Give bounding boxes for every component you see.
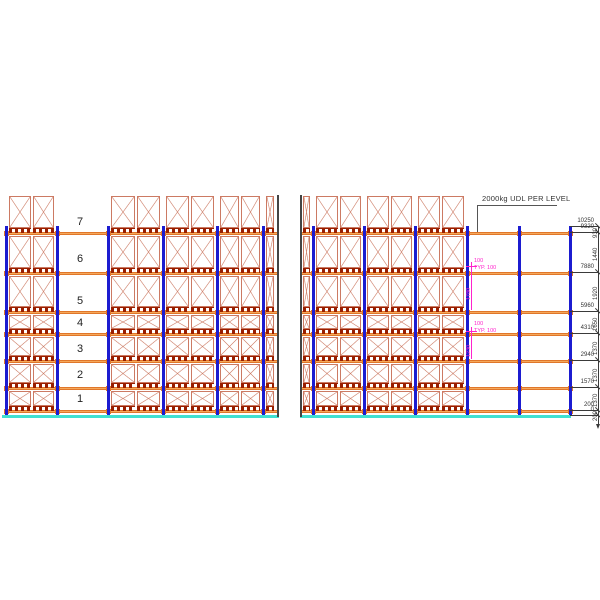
pallet-base — [266, 228, 274, 233]
pallet-load-box — [442, 196, 464, 228]
pallet-load-box — [340, 364, 362, 383]
pallet-base — [316, 356, 338, 361]
pallet-base — [391, 329, 413, 334]
pallet-base — [9, 307, 31, 312]
pallet-base — [33, 406, 55, 411]
pallet-base — [442, 356, 464, 361]
pallet-base — [33, 307, 55, 312]
pallet-base — [340, 329, 362, 334]
pallet-load-box — [418, 337, 440, 356]
pallet-load-box — [137, 276, 161, 307]
pallet-base — [340, 268, 362, 273]
pallet-base — [391, 406, 413, 411]
pallet-load-box — [316, 315, 338, 329]
dim-elevation-label: 0 — [560, 407, 594, 414]
pallet-load-box — [316, 391, 338, 406]
dim-arrow-down — [596, 424, 600, 429]
pallet-load-box — [303, 236, 310, 268]
upright-left-3 — [162, 226, 165, 415]
pallet-base — [241, 383, 260, 388]
level-number-1: 1 — [68, 393, 92, 405]
pallet-load-box — [442, 236, 464, 268]
pallet-load-box — [166, 315, 189, 329]
pallet-load-box — [340, 315, 362, 329]
pallet-load-box — [418, 196, 440, 228]
pallet-base — [303, 383, 310, 388]
dim-extension-line — [570, 387, 599, 388]
pallet-load-box — [367, 196, 389, 228]
dim-elevation-label: 1570 — [560, 379, 594, 386]
pallet-base — [220, 268, 239, 273]
pallet-load-box — [33, 236, 55, 268]
pallet-base — [137, 307, 161, 312]
pallet-load-box — [303, 337, 310, 356]
pallet-load-box — [303, 391, 310, 406]
break-line-left — [277, 195, 279, 417]
dim-elevation-label: 7880 — [560, 264, 594, 271]
pallet-base — [266, 356, 274, 361]
pallet-load-box — [442, 276, 464, 307]
pallet-base — [137, 406, 161, 411]
upright-left-4 — [216, 226, 219, 415]
pallet-load-box — [9, 364, 31, 383]
note-leader-underline — [477, 205, 557, 206]
pallet-load-box — [266, 196, 274, 228]
pallet-base — [391, 383, 413, 388]
pallet-load-box — [266, 337, 274, 356]
pallet-base — [220, 228, 239, 233]
pallet-load-box — [191, 364, 214, 383]
pallet-base — [418, 307, 440, 312]
pallet-load-box — [442, 337, 464, 356]
pallet-base — [9, 268, 31, 273]
pallet-load-box — [418, 315, 440, 329]
pallet-load-box — [191, 337, 214, 356]
pallet-base — [111, 356, 135, 361]
break-line-right — [300, 195, 302, 417]
pallet-load-box — [391, 391, 413, 406]
pallet-load-box — [166, 364, 189, 383]
pallet-load-box — [137, 364, 161, 383]
callout-clear-label: 1230 — [466, 345, 472, 357]
callout-beam-label: 100 — [474, 321, 483, 327]
pallet-load-box — [266, 315, 274, 329]
pallet-load-box — [9, 337, 31, 356]
pallet-load-box — [340, 391, 362, 406]
dim-spacing-label: 1440 — [593, 248, 599, 261]
pallet-base — [442, 329, 464, 334]
pallet-load-box — [241, 196, 260, 228]
pallet-base — [266, 406, 274, 411]
pallet-base — [367, 406, 389, 411]
pallet-base — [9, 406, 31, 411]
pallet-base — [391, 268, 413, 273]
upright-right-3 — [466, 226, 469, 415]
dim-extension-line — [570, 333, 599, 334]
pallet-base — [137, 268, 161, 273]
pallet-load-box — [191, 276, 214, 307]
pallet-load-box — [191, 196, 214, 228]
pallet-base — [442, 406, 464, 411]
pallet-base — [9, 356, 31, 361]
pallet-load-box — [191, 391, 214, 406]
pallet-load-box — [367, 276, 389, 307]
pallet-base — [316, 307, 338, 312]
pallet-load-box — [367, 236, 389, 268]
pallet-load-box — [340, 337, 362, 356]
pallet-load-box — [33, 276, 55, 307]
upright-left-1 — [56, 226, 59, 415]
pallet-load-box — [111, 196, 135, 228]
upright-right-1 — [363, 226, 366, 415]
pallet-base — [418, 268, 440, 273]
pallet-load-box — [391, 236, 413, 268]
callout-beam-label: 100 — [474, 258, 483, 264]
pallet-base — [166, 307, 189, 312]
pallet-base — [391, 228, 413, 233]
pallet-base — [303, 356, 310, 361]
pallet-base — [33, 383, 55, 388]
pallet-load-box — [220, 236, 239, 268]
pallet-load-box — [33, 391, 55, 406]
pallet-load-box — [137, 236, 161, 268]
pallet-base — [166, 356, 189, 361]
pallet-base — [418, 406, 440, 411]
pallet-load-box — [316, 364, 338, 383]
pallet-load-box — [391, 315, 413, 329]
upright-right-2 — [414, 226, 417, 415]
pallet-base — [111, 228, 135, 233]
dim-extension-line — [570, 360, 599, 361]
pallet-base — [111, 307, 135, 312]
pallet-base — [367, 307, 389, 312]
callout-clear-label: 1780 — [466, 288, 472, 300]
pallet-load-box — [137, 196, 161, 228]
pallet-base — [418, 228, 440, 233]
pallet-load-box — [442, 315, 464, 329]
pallet-load-box — [166, 391, 189, 406]
pallet-base — [340, 307, 362, 312]
level-number-2: 2 — [68, 369, 92, 381]
pallet-base — [111, 268, 135, 273]
pallet-load-box — [137, 315, 161, 329]
pallet-base — [33, 356, 55, 361]
pallet-base — [191, 406, 214, 411]
pallet-load-box — [316, 236, 338, 268]
pallet-load-box — [442, 391, 464, 406]
pallet-base — [220, 329, 239, 334]
upright-right-4 — [518, 226, 521, 415]
pallet-load-box — [220, 337, 239, 356]
pallet-base — [166, 268, 189, 273]
pallet-load-box — [303, 276, 310, 307]
pallet-base — [418, 329, 440, 334]
pallet-base — [166, 329, 189, 334]
dim-elevation-label: 5960 — [560, 303, 594, 310]
callout-typ-label: TYP. 100 — [474, 328, 496, 334]
pallet-load-box — [220, 276, 239, 307]
pallet-load-box — [340, 196, 362, 228]
pallet-base — [340, 356, 362, 361]
pallet-base — [340, 406, 362, 411]
pallet-base — [367, 383, 389, 388]
pallet-load-box — [9, 315, 31, 329]
pallet-base — [137, 329, 161, 334]
pallet-load-box — [9, 276, 31, 307]
pallet-load-box — [166, 236, 189, 268]
pallet-base — [316, 329, 338, 334]
pallet-load-box — [33, 196, 55, 228]
pallet-base — [9, 228, 31, 233]
pallet-base — [367, 268, 389, 273]
level-number-6: 6 — [68, 253, 92, 265]
floor-line-left — [2, 415, 279, 418]
pallet-load-box — [33, 364, 55, 383]
pallet-base — [367, 228, 389, 233]
pallet-load-box — [367, 315, 389, 329]
pallet-load-box — [367, 391, 389, 406]
pallet-base — [442, 228, 464, 233]
pallet-load-box — [391, 364, 413, 383]
pallet-load-box — [442, 364, 464, 383]
pallet-load-box — [316, 276, 338, 307]
pallet-base — [220, 383, 239, 388]
pallet-base — [111, 383, 135, 388]
pallet-base — [137, 383, 161, 388]
pallet-base — [220, 356, 239, 361]
pallet-base — [33, 329, 55, 334]
pallet-base — [303, 307, 310, 312]
pallet-base — [391, 356, 413, 361]
dim-elevation-label: 2940 — [560, 352, 594, 359]
pallet-load-box — [241, 276, 260, 307]
pallet-base — [418, 356, 440, 361]
callout-line — [471, 262, 472, 310]
pallet-base — [191, 356, 214, 361]
callout-typ-label: TYP. 100 — [474, 265, 496, 271]
pallet-load-box — [340, 276, 362, 307]
note-leader-line — [477, 205, 478, 232]
dim-spacing-label: 1370 — [593, 342, 599, 355]
pallet-load-box — [241, 315, 260, 329]
dim-spacing-label: 1370 — [593, 394, 599, 407]
pallet-base — [303, 329, 310, 334]
pallet-load-box — [191, 236, 214, 268]
pallet-base — [241, 307, 260, 312]
pallet-base — [137, 356, 161, 361]
pallet-base — [33, 268, 55, 273]
pallet-base — [9, 329, 31, 334]
pallet-load-box — [111, 315, 135, 329]
pallet-base — [316, 406, 338, 411]
pallet-load-box — [111, 364, 135, 383]
level-number-3: 3 — [68, 343, 92, 355]
upright-right-0 — [312, 226, 315, 415]
pallet-base — [220, 406, 239, 411]
pallet-load-box — [316, 196, 338, 228]
pallet-base — [316, 228, 338, 233]
pallet-base — [191, 268, 214, 273]
pallet-base — [191, 228, 214, 233]
pallet-load-box — [418, 391, 440, 406]
pallet-load-box — [166, 337, 189, 356]
pallet-base — [418, 383, 440, 388]
pallet-load-box — [220, 315, 239, 329]
dim-spacing-label: 1650 — [593, 318, 599, 331]
pallet-base — [303, 406, 310, 411]
pallet-load-box — [241, 337, 260, 356]
pallet-load-box — [391, 276, 413, 307]
pallet-base — [137, 228, 161, 233]
dim-elevation-label: 9320 — [560, 224, 594, 231]
pallet-load-box — [303, 196, 310, 228]
pallet-base — [241, 406, 260, 411]
pallet-base — [166, 228, 189, 233]
dim-elevation-label: 4310 — [560, 325, 594, 332]
udl-note-label: 2000kg UDL PER LEVEL — [482, 194, 570, 203]
pallet-base — [9, 383, 31, 388]
pallet-load-box — [220, 364, 239, 383]
pallet-base — [340, 383, 362, 388]
pallet-load-box — [111, 276, 135, 307]
pallet-base — [266, 383, 274, 388]
dim-spacing-label: 1920 — [593, 287, 599, 300]
racking-elevation-drawing: 2000kg UDL PER LEVEL 7654321102509320788… — [0, 0, 600, 600]
pallet-base — [111, 329, 135, 334]
dim-spacing-label: 1370 — [593, 369, 599, 382]
pallet-load-box — [220, 391, 239, 406]
upright-left-0 — [5, 226, 8, 415]
pallet-load-box — [166, 276, 189, 307]
pallet-base — [367, 329, 389, 334]
pallet-base — [166, 383, 189, 388]
pallet-load-box — [111, 391, 135, 406]
pallet-load-box — [137, 337, 161, 356]
pallet-base — [303, 228, 310, 233]
upright-left-5 — [262, 226, 265, 415]
pallet-load-box — [111, 337, 135, 356]
pallet-load-box — [137, 391, 161, 406]
pallet-base — [367, 356, 389, 361]
pallet-base — [241, 228, 260, 233]
pallet-load-box — [266, 276, 274, 307]
pallet-base — [442, 307, 464, 312]
level-number-4: 4 — [68, 317, 92, 329]
pallet-load-box — [220, 196, 239, 228]
pallet-load-box — [241, 391, 260, 406]
pallet-load-box — [266, 364, 274, 383]
pallet-base — [33, 228, 55, 233]
pallet-base — [191, 307, 214, 312]
level-number-7: 7 — [68, 216, 92, 228]
pallet-load-box — [111, 236, 135, 268]
pallet-base — [220, 307, 239, 312]
level-number-5: 5 — [68, 295, 92, 307]
dim-extension-line — [570, 272, 599, 273]
pallet-load-box — [33, 315, 55, 329]
pallet-load-box — [241, 364, 260, 383]
pallet-load-box — [9, 236, 31, 268]
pallet-load-box — [367, 364, 389, 383]
pallet-load-box — [391, 337, 413, 356]
dim-extension-line — [570, 311, 599, 312]
pallet-load-box — [266, 391, 274, 406]
pallet-load-box — [418, 236, 440, 268]
pallet-load-box — [191, 315, 214, 329]
pallet-base — [442, 268, 464, 273]
pallet-load-box — [391, 196, 413, 228]
pallet-base — [266, 268, 274, 273]
pallet-base — [391, 307, 413, 312]
upright-left-2 — [107, 226, 110, 415]
pallet-load-box — [33, 337, 55, 356]
pallet-load-box — [9, 391, 31, 406]
floor-line-right — [300, 415, 571, 418]
pallet-base — [266, 307, 274, 312]
pallet-load-box — [241, 236, 260, 268]
pallet-base — [191, 383, 214, 388]
pallet-base — [316, 268, 338, 273]
pallet-load-box — [266, 236, 274, 268]
pallet-base — [266, 329, 274, 334]
pallet-base — [166, 406, 189, 411]
pallet-base — [340, 228, 362, 233]
pallet-base — [241, 268, 260, 273]
pallet-base — [316, 383, 338, 388]
pallet-load-box — [418, 276, 440, 307]
pallet-load-box — [340, 236, 362, 268]
pallet-base — [111, 406, 135, 411]
pallet-base — [442, 383, 464, 388]
pallet-load-box — [367, 337, 389, 356]
pallet-load-box — [418, 364, 440, 383]
pallet-load-box — [303, 315, 310, 329]
dim-spacing-label: 930 — [593, 228, 599, 238]
dim-line-tail — [598, 415, 599, 424]
pallet-base — [241, 356, 260, 361]
pallet-base — [303, 268, 310, 273]
pallet-base — [241, 329, 260, 334]
pallet-load-box — [303, 364, 310, 383]
pallet-base — [191, 329, 214, 334]
pallet-load-box — [316, 337, 338, 356]
pallet-load-box — [166, 196, 189, 228]
pallet-load-box — [9, 196, 31, 228]
